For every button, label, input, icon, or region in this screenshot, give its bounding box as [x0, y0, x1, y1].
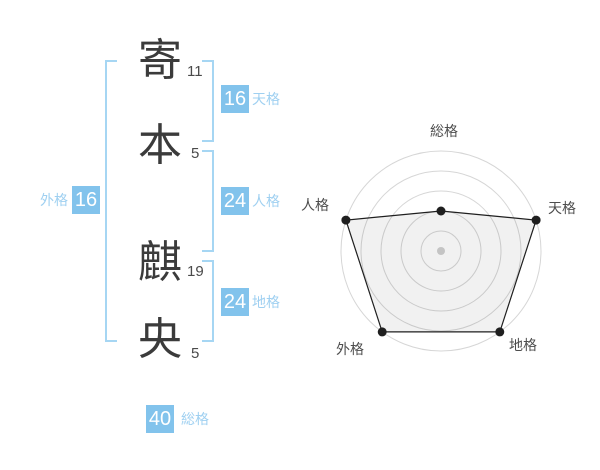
radar-point — [341, 216, 350, 225]
name-char-4: 央 — [136, 317, 184, 363]
chikaku-label: 地格 — [252, 295, 280, 309]
radar-axis-label: 人格 — [301, 197, 329, 213]
radar-point — [532, 216, 541, 225]
tenkaku-value-box: 16 — [221, 85, 249, 113]
radar-center-dot — [437, 247, 445, 255]
name-char-2: 本 — [136, 123, 184, 169]
soukaku-label: 総格 — [181, 412, 209, 426]
stroke-count-1: 11 — [187, 64, 203, 79]
gaikaku-value-box: 16 — [72, 186, 100, 214]
gaikaku-label: 外格 — [40, 193, 68, 207]
radar-point — [437, 207, 446, 216]
name-char-1: 寄 — [136, 38, 184, 84]
radar-axis-label: 総格 — [430, 123, 458, 139]
name-fortune-page: 寄 本 麒 央 11 5 19 5 16 天格 24 人格 24 地格 外格 1… — [0, 0, 600, 470]
radar-axis-label: 外格 — [336, 341, 364, 357]
tenkaku-bracket — [202, 60, 214, 142]
stroke-count-4: 5 — [191, 346, 199, 361]
radar-axis-label: 地格 — [509, 337, 537, 353]
radar-point — [495, 327, 504, 336]
chikaku-value-box: 24 — [221, 288, 249, 316]
radar-point — [378, 327, 387, 336]
gaikaku-bracket — [105, 60, 117, 342]
radar-chart: 総格天格地格外格人格 — [295, 115, 585, 365]
stroke-count-2: 5 — [191, 146, 199, 161]
tenkaku-label: 天格 — [252, 92, 280, 106]
name-char-3: 麒 — [136, 240, 184, 286]
radar-polygon — [346, 211, 536, 332]
chikaku-bracket — [202, 260, 214, 342]
jinkaku-label: 人格 — [252, 194, 280, 208]
jinkaku-value-box: 24 — [221, 187, 249, 215]
radar-axis-label: 天格 — [548, 200, 576, 216]
jinkaku-bracket — [202, 150, 214, 252]
soukaku-value-box: 40 — [146, 405, 174, 433]
